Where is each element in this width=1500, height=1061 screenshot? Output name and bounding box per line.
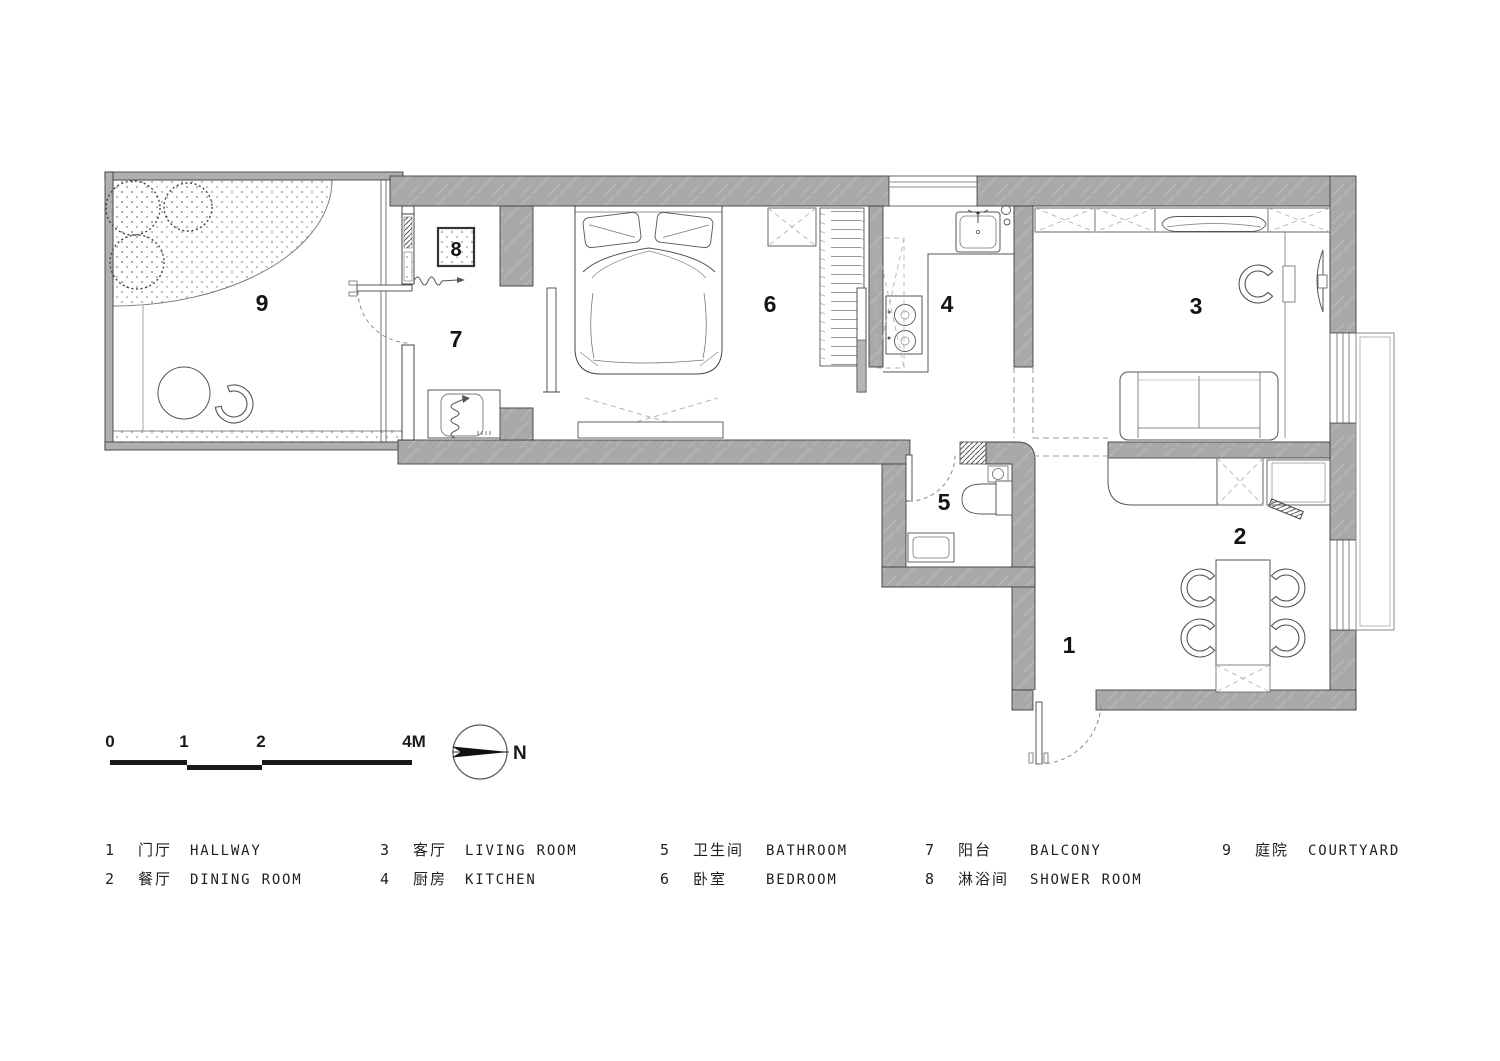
legend-item-living-room: 3客厅LIVING ROOM [380,839,578,860]
garden-chair [212,380,260,430]
cabinet [1216,665,1270,692]
legend-num: 4 [380,870,413,888]
bay-window [1356,333,1394,630]
legend-num: 7 [925,841,958,859]
legend-item-courtyard: 9庭院COURTYARD [1222,839,1400,860]
legend-item-bathroom: 5卫生间BATHROOM [660,839,848,860]
legend-en: COURTYARD [1308,843,1400,859]
legend-item-balcony: 7阳台BALCONY [925,839,1102,860]
legend-num: 8 [925,870,958,888]
legend-item-kitchen: 4厨房KITCHEN [380,868,537,889]
tv-cabinet-row [1035,208,1330,232]
legend-num: 9 [1222,841,1255,859]
room-label-6: 6 [764,291,777,317]
desk [1283,266,1295,302]
legend-en: DINING ROOM [190,872,303,888]
living-room-window [1330,333,1356,423]
legend-num: 6 [660,870,693,888]
legend-num: 2 [105,870,138,888]
washbasin [908,533,954,562]
tv [1162,217,1266,232]
legend-item-shower-room: 8淋浴间SHOWER ROOM [925,868,1143,889]
north-label: N [513,743,527,764]
legend-zh: 卫生间 [693,839,766,860]
tv-console [578,422,723,438]
toilet [962,481,1012,515]
sliding-door-leaf [543,288,560,392]
sofa [1120,372,1278,440]
dining-window [1330,540,1356,630]
legend-zh: 餐厅 [138,868,190,889]
room-label-9: 9 [256,290,269,316]
legend-zh: 厨房 [413,868,465,889]
floor-plan-sheet: 9 8 7 6 4 3 5 2 1 0 1 2 4M N 1门厅HALLWAY … [0,0,1500,1061]
legend-en: BALCONY [1030,843,1102,859]
wall-infill-hatch [960,442,986,464]
north-compass-icon: N [452,725,527,779]
door-swing-arc [358,291,410,343]
entrance-door [1029,702,1101,764]
legend-en: BEDROOM [766,872,838,888]
sliding-door-leaf [857,288,866,392]
legend-zh: 淋浴间 [958,868,1030,889]
kitchen [876,206,1014,373]
tree [110,235,164,289]
cabinet [768,208,816,246]
bathroom-door-opening [910,442,960,464]
double-bed [575,206,722,374]
opening-dashed-lines [1014,367,1108,456]
legend-num: 3 [380,841,413,859]
courtyard [105,172,403,450]
courtyard-wall-bottom [105,442,403,450]
room-label-1: 1 [1063,632,1076,658]
legend-zh: 门厅 [138,839,190,860]
door-leaf [1036,702,1042,764]
counter [1108,458,1217,505]
living-room [1035,208,1330,440]
walls [390,176,1356,710]
desk-chair [1239,265,1273,303]
legend-item-hallway: 1门厅HALLWAY [105,839,262,860]
drain-pipe-icon [414,277,457,285]
gravel-strip [113,431,403,442]
legend-en: BATHROOM [766,843,848,859]
courtyard-wall-top [105,172,403,180]
room-label-2: 2 [1234,523,1247,549]
door-leaf [357,285,412,291]
room-label-8: 8 [450,239,461,261]
scale-tick-0: 0 [105,732,114,751]
scale-bar: 0 1 2 4M [105,732,426,770]
room-label-4: 4 [941,291,954,317]
legend-item-dining-room: 2餐厅DINING ROOM [105,868,303,889]
fridge [1267,460,1330,519]
balcony-left-wall [402,206,414,440]
floor-drain [988,466,1008,482]
kitchen-sink [956,210,1000,252]
legend-num: 5 [660,841,693,859]
dining-room [1108,458,1330,692]
door-leaf [906,455,912,501]
room-label-7: 7 [450,326,463,352]
scale-tick-2: 2 [256,732,265,751]
cabinet [1217,458,1263,505]
radiator [1317,250,1327,312]
room-label-3: 3 [1190,293,1203,319]
pipe-circle [1004,219,1010,225]
floor-plan-drawing: 9 8 7 6 4 3 5 2 1 0 1 2 4M N [0,0,1500,1061]
dining-table [1216,560,1270,667]
legend-zh: 阳台 [958,839,1030,860]
legend-en: HALLWAY [190,843,262,859]
bedroom [500,206,866,438]
scale-tick-4m: 4M [402,732,426,751]
garden-table [158,367,210,419]
pipe-circle [1002,206,1011,215]
legend-en: LIVING ROOM [465,843,578,859]
kitchen-window [889,176,977,206]
legend-num: 1 [105,841,138,859]
glass-screen [381,180,386,442]
scale-tick-1: 1 [179,732,188,751]
legend-en: KITCHEN [465,872,537,888]
tree [106,181,160,235]
courtyard-door [349,281,412,343]
bathroom [906,455,1012,562]
legend-zh: 卧室 [693,868,766,889]
room-label-5: 5 [938,489,951,515]
legend-item-bedroom: 6卧室BEDROOM [660,868,838,889]
legend-zh: 客厅 [413,839,465,860]
tree [164,183,212,231]
legend-en: SHOWER ROOM [1030,872,1143,888]
legend-zh: 庭院 [1255,839,1308,860]
